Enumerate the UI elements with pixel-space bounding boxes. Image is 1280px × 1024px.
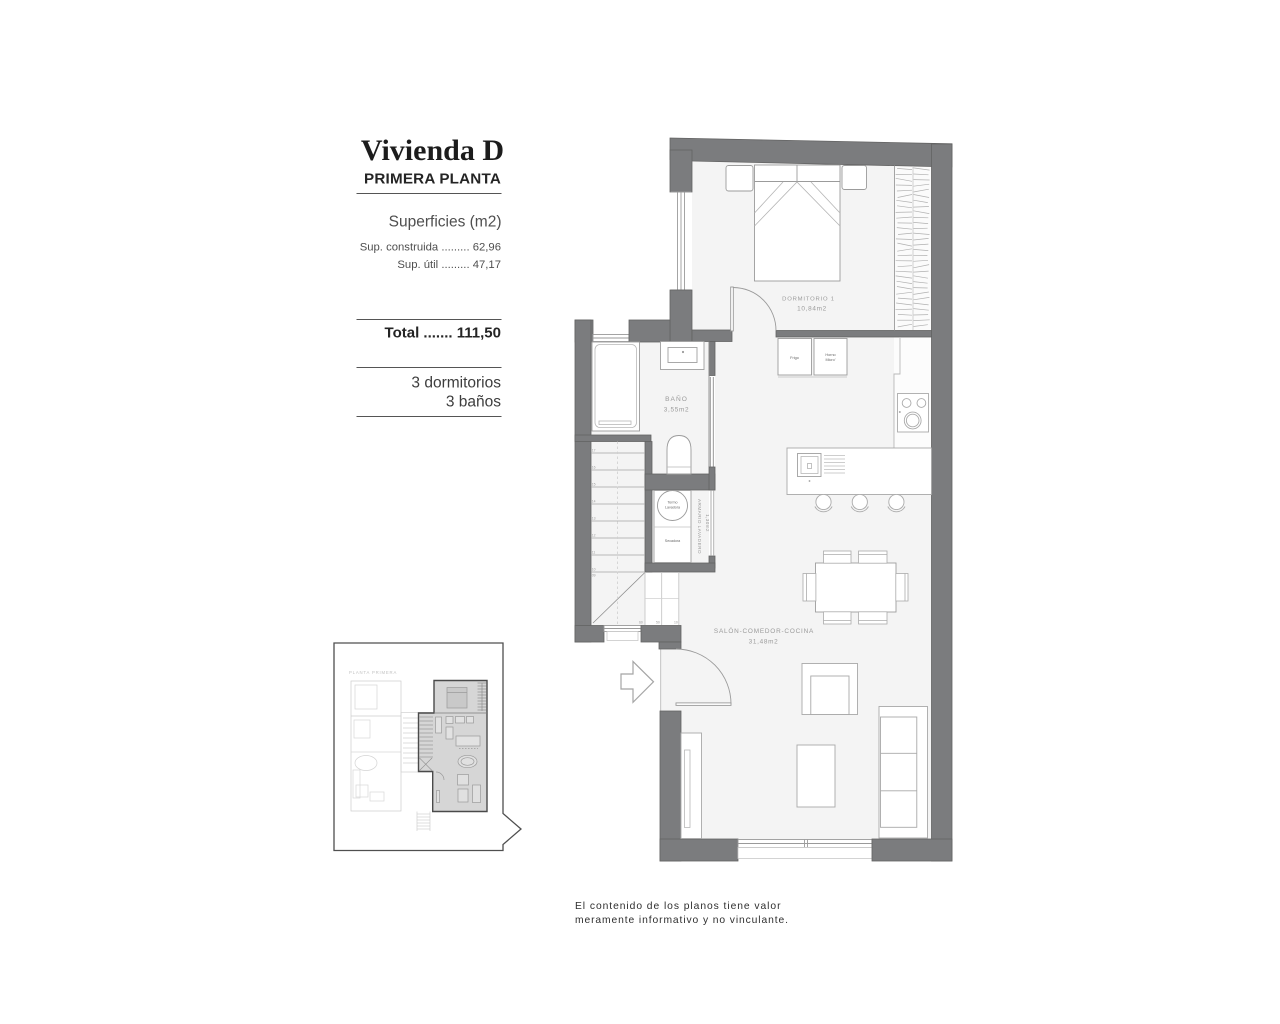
svg-text:10: 10 <box>592 568 596 572</box>
svg-text:Total ....... 111,50: Total ....... 111,50 <box>385 325 501 342</box>
svg-text:Micro': Micro' <box>825 358 835 362</box>
svg-text:12: 12 <box>592 534 596 538</box>
svg-text:Horno: Horno <box>825 353 835 357</box>
svg-text:Termo: Termo <box>668 501 678 505</box>
svg-text:50: 50 <box>656 621 660 625</box>
svg-text:11: 11 <box>592 551 596 555</box>
svg-text:Superficies (m2): Superficies (m2) <box>389 214 502 231</box>
svg-text:17: 17 <box>592 449 596 453</box>
svg-text:31,48m2: 31,48m2 <box>749 639 779 646</box>
svg-text:3,55m2: 3,55m2 <box>664 407 690 414</box>
svg-text:Frigo: Frigo <box>790 356 799 360</box>
svg-text:ARMARIO LAVADERO: ARMARIO LAVADERO <box>697 499 702 554</box>
svg-text:meramente informativo y no vin: meramente informativo y no vinculante. <box>575 915 788 926</box>
svg-text:PRIMERA PLANTA: PRIMERA PLANTA <box>364 171 501 188</box>
svg-text:09: 09 <box>592 574 596 578</box>
svg-text:Sup. útil ......... 47,17: Sup. útil ......... 47,17 <box>397 259 501 271</box>
svg-text:3 dormitorios: 3 dormitorios <box>411 374 501 391</box>
svg-text:PLANTA PRIMERA: PLANTA PRIMERA <box>349 670 397 675</box>
svg-text:Lavadora: Lavadora <box>665 506 680 510</box>
svg-text:SALÓN-COMEDOR-COCINA: SALÓN-COMEDOR-COCINA <box>714 626 814 635</box>
svg-text:60: 60 <box>639 621 643 625</box>
svg-text:DORMITORIO 1: DORMITORIO 1 <box>782 297 835 303</box>
svg-text:15: 15 <box>592 483 596 487</box>
svg-text:Sup. construida ......... 62,9: Sup. construida ......... 62,96 <box>360 242 501 254</box>
svg-text:16: 16 <box>592 466 596 470</box>
svg-text:3 baños: 3 baños <box>446 394 501 411</box>
svg-text:Vivienda D: Vivienda D <box>361 134 504 167</box>
svg-text:1,30m2: 1,30m2 <box>705 514 710 532</box>
svg-text:BAÑO: BAÑO <box>665 394 688 403</box>
svg-text:14: 14 <box>592 500 596 504</box>
svg-text:El contenido de los planos tie: El contenido de los planos tiene valor <box>575 901 781 912</box>
svg-text:10,84m2: 10,84m2 <box>797 306 827 313</box>
svg-text:10: 10 <box>674 621 678 625</box>
svg-text:13: 13 <box>592 517 596 521</box>
svg-text:Secadora: Secadora <box>665 539 680 543</box>
